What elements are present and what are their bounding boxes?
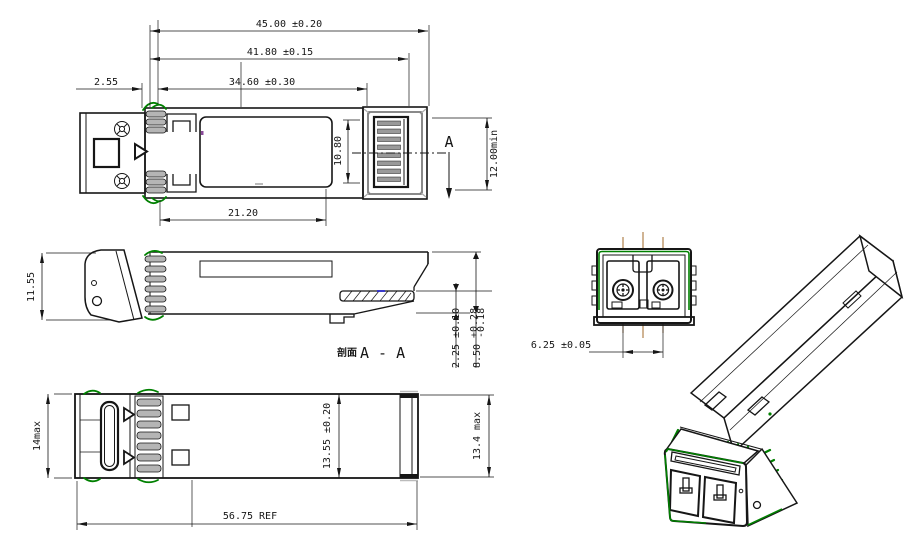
iso-lc-cavity-right xyxy=(703,477,736,523)
dim-label-length: 21.20 xyxy=(228,208,258,219)
dim-pad-width: 10.80 xyxy=(333,136,344,166)
bottom-view: 14max 13.55 ±0.20 13.4 max 56.75 REF xyxy=(32,390,494,530)
dim-front-offset: 2.55 xyxy=(94,77,118,88)
label-recess xyxy=(200,117,332,187)
dim-body-length: 34.60 ±0.30 xyxy=(229,77,295,88)
sfp-outline-drawing: 45.00 ±0.20 41.80 ±0.15 34.60 ±0.30 2.55… xyxy=(0,0,910,547)
front-body xyxy=(597,249,691,323)
purple-mark xyxy=(201,131,204,135)
dim-body-width: 13.55 ±0.20 xyxy=(322,403,333,469)
emi-fingers-side xyxy=(145,251,166,320)
triangle-marker-icon xyxy=(124,408,134,421)
top-view: 45.00 ±0.20 41.80 ±0.15 34.60 ±0.30 2.55… xyxy=(76,19,500,226)
dim-length-to-pads: 41.80 ±0.15 xyxy=(247,47,313,58)
bottom-hook xyxy=(330,314,354,323)
bail-latch xyxy=(85,250,142,322)
dim-height-tol-minus: -0.18 xyxy=(476,308,487,338)
section-label-prefix: 剖面 xyxy=(337,346,357,359)
iso-lc-cavity-left xyxy=(670,470,700,516)
dim-height-base: 8.50 xyxy=(472,344,483,368)
emi-fingers-bottom xyxy=(84,390,163,483)
bottom-body-outline xyxy=(75,394,418,478)
engineering-drawing-canvas: 45.00 ±0.20 41.80 ±0.15 34.60 ±0.30 2.55… xyxy=(0,0,910,547)
dim-min-depth: 12.00min xyxy=(489,130,500,178)
isometric-view xyxy=(665,236,902,526)
latch-bracket-bottom xyxy=(167,174,196,192)
dim-overall-length: 45.00 ±0.20 xyxy=(256,19,322,30)
triangle-marker-icon xyxy=(124,451,134,464)
dim-ferrule-pitch: 6.25 ±0.05 xyxy=(531,340,591,351)
screw-icon xyxy=(115,174,130,189)
lc-slot xyxy=(101,402,118,470)
latch-bracket-top xyxy=(167,114,196,132)
front-view: 6.25 ±0.05 xyxy=(531,232,696,358)
top-view-dimensions: 45.00 ±0.20 41.80 ±0.15 34.60 ±0.30 2.55… xyxy=(76,19,500,226)
section-letter: A xyxy=(444,133,453,151)
section-label: A - A xyxy=(360,344,405,362)
dim-max-width: 13.4 max xyxy=(472,412,483,460)
bezel-notch xyxy=(94,139,119,167)
dim-front-height: 14max xyxy=(32,421,43,451)
dim-length-ref: 56.75 REF xyxy=(223,511,277,522)
dim-tongue-thickness: 2.25 ±0.10 xyxy=(451,308,462,368)
pcb-tongue-hatch xyxy=(344,291,411,301)
section-arrow-icon xyxy=(446,188,452,199)
green-dot xyxy=(768,412,771,415)
screw-icon xyxy=(115,122,130,137)
dim-side-height: 11.55 xyxy=(26,272,37,302)
side-view: 11.55 2.25 ±0.10 8.50 +0.28 -0.18 剖面 A -… xyxy=(26,250,492,368)
